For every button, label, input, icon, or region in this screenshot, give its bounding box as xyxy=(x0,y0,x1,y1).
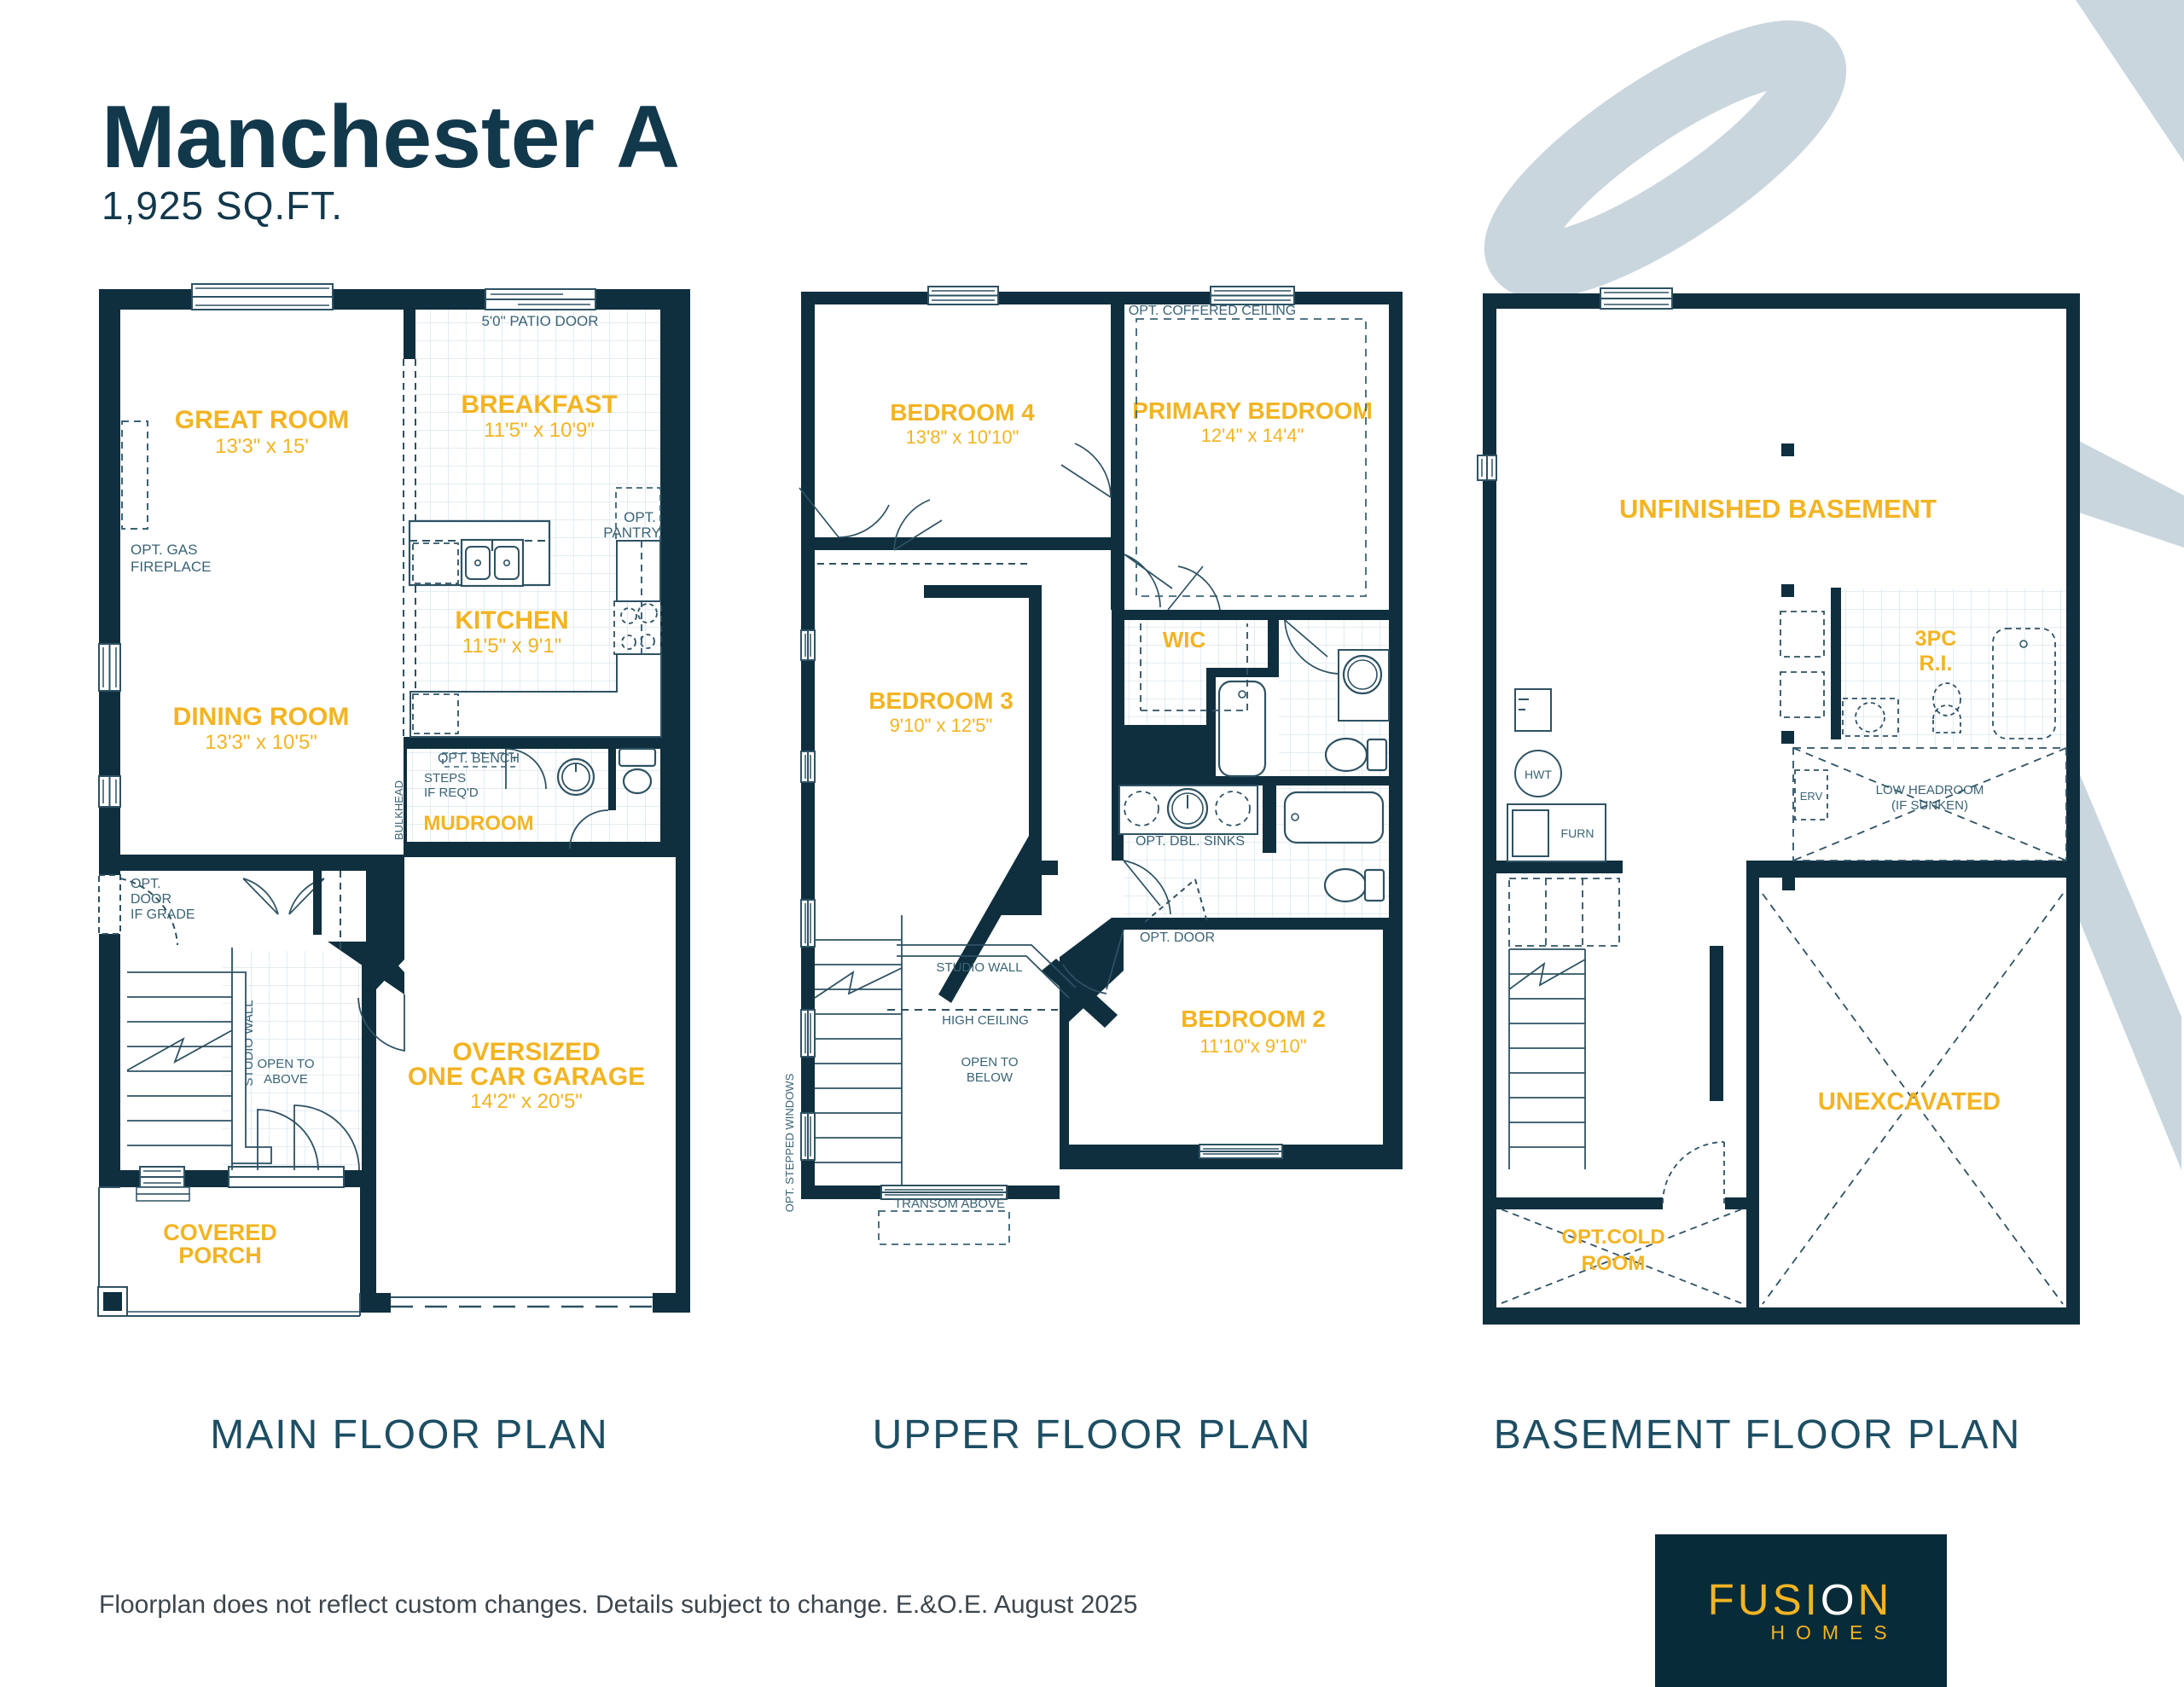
svg-text:FUSION: FUSION xyxy=(1708,1575,1893,1624)
svg-text:PORCH: PORCH xyxy=(178,1243,262,1268)
svg-text:BASEMENT FLOOR PLAN: BASEMENT FLOOR PLAN xyxy=(1494,1412,2022,1458)
svg-text:DINING ROOM: DINING ROOM xyxy=(173,703,350,731)
svg-text:LOW HEADROOM: LOW HEADROOM xyxy=(1876,783,1984,797)
svg-text:OPT.: OPT. xyxy=(624,509,656,525)
svg-text:BEDROOM 3: BEDROOM 3 xyxy=(868,687,1014,714)
svg-text:(IF SUNKEN): (IF SUNKEN) xyxy=(1891,798,1968,813)
svg-text:13'3" x 10'5": 13'3" x 10'5" xyxy=(205,731,317,754)
svg-text:TRANSOM ABOVE: TRANSOM ABOVE xyxy=(894,1197,1005,1211)
svg-text:ROOM: ROOM xyxy=(1582,1252,1646,1275)
svg-text:5'0" PATIO DOOR: 5'0" PATIO DOOR xyxy=(481,313,598,329)
svg-text:OPEN TO: OPEN TO xyxy=(258,1057,315,1071)
svg-text:Floorplan does not reflect cus: Floorplan does not reflect custom change… xyxy=(99,1591,1137,1619)
svg-text:PRIMARY BEDROOM: PRIMARY BEDROOM xyxy=(1132,397,1373,424)
svg-text:UNFINISHED BASEMENT: UNFINISHED BASEMENT xyxy=(1619,494,1937,524)
svg-text:ABOVE: ABOVE xyxy=(264,1072,308,1087)
svg-text:PANTRY: PANTRY xyxy=(603,525,660,541)
svg-text:FIREPLACE: FIREPLACE xyxy=(131,559,211,575)
svg-text:IF REQ'D: IF REQ'D xyxy=(424,786,479,800)
svg-text:OPT. DBL. SINKS: OPT. DBL. SINKS xyxy=(1136,834,1245,849)
svg-text:KITCHEN: KITCHEN xyxy=(455,606,568,635)
svg-text:GREAT ROOM: GREAT ROOM xyxy=(175,406,349,434)
svg-text:STEPS: STEPS xyxy=(424,771,466,786)
svg-text:UPPER FLOOR PLAN: UPPER FLOOR PLAN xyxy=(873,1412,1312,1458)
svg-text:12'4" x 14'4": 12'4" x 14'4" xyxy=(1201,425,1304,446)
svg-text:MAIN FLOOR PLAN: MAIN FLOOR PLAN xyxy=(210,1412,608,1458)
svg-text:BULKHEAD: BULKHEAD xyxy=(392,780,405,840)
svg-text:BELOW: BELOW xyxy=(967,1070,1014,1085)
svg-text:FURN: FURN xyxy=(1561,826,1594,840)
svg-text:OPT. DOOR: OPT. DOOR xyxy=(1140,930,1215,945)
svg-text:OPT. GAS: OPT. GAS xyxy=(131,542,197,558)
svg-text:IF GRADE: IF GRADE xyxy=(131,907,195,922)
svg-text:11'10"x 9'10": 11'10"x 9'10" xyxy=(1199,1035,1306,1057)
svg-text:STUDIO WALL: STUDIO WALL xyxy=(936,960,1022,975)
svg-text:HIGH CEILING: HIGH CEILING xyxy=(942,1013,1029,1028)
svg-text:OPT.COLD: OPT.COLD xyxy=(1561,1226,1664,1249)
svg-text:3PC: 3PC xyxy=(1915,627,1957,651)
svg-text:R.I.: R.I. xyxy=(1920,652,1953,675)
svg-text:OPT. BENCH: OPT. BENCH xyxy=(438,751,520,766)
svg-text:BEDROOM 4: BEDROOM 4 xyxy=(890,399,1035,426)
svg-text:COVERED: COVERED xyxy=(163,1220,277,1245)
svg-text:11'5" x 9'1": 11'5" x 9'1" xyxy=(462,635,562,658)
svg-text:OPT. COFFERED CEILING: OPT. COFFERED CEILING xyxy=(1129,304,1296,318)
svg-text:UNEXCAVATED: UNEXCAVATED xyxy=(1818,1088,2001,1116)
svg-text:13'8" x 10'10": 13'8" x 10'10" xyxy=(906,426,1019,448)
svg-text:BREAKFAST: BREAKFAST xyxy=(461,391,617,419)
svg-text:OPT. STEPPED WINDOWS: OPT. STEPPED WINDOWS xyxy=(783,1073,796,1212)
svg-text:Manchester A: Manchester A xyxy=(102,88,680,187)
svg-text:BEDROOM 2: BEDROOM 2 xyxy=(1181,1006,1326,1032)
svg-text:HOMES: HOMES xyxy=(1770,1621,1897,1644)
svg-text:DOOR: DOOR xyxy=(131,892,171,907)
svg-text:HWT: HWT xyxy=(1525,768,1552,781)
svg-text:11'5" x 10'9": 11'5" x 10'9" xyxy=(484,419,595,442)
svg-text:MUDROOM: MUDROOM xyxy=(423,812,533,835)
svg-text:9'10" x 12'5": 9'10" x 12'5" xyxy=(890,715,993,736)
svg-text:WIC: WIC xyxy=(1163,627,1206,652)
svg-text:ERV: ERV xyxy=(1800,790,1823,803)
svg-text:1,925 SQ.FT.: 1,925 SQ.FT. xyxy=(102,183,343,228)
svg-text:14'2" x 20'5": 14'2" x 20'5" xyxy=(470,1090,583,1113)
svg-text:13'3" x 15': 13'3" x 15' xyxy=(215,435,309,458)
svg-text:OPT.: OPT. xyxy=(131,877,161,891)
svg-text:OPEN TO: OPEN TO xyxy=(961,1055,1019,1070)
svg-text:ONE CAR GARAGE: ONE CAR GARAGE xyxy=(408,1063,645,1091)
